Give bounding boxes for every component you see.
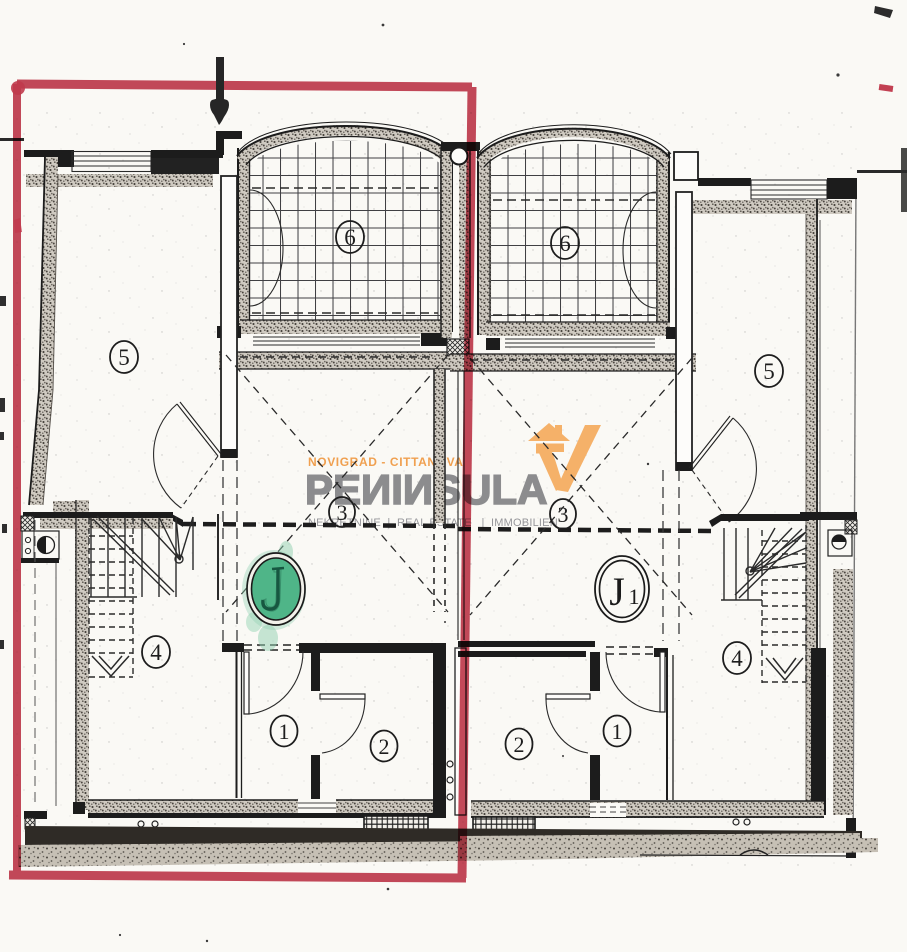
svg-text:6: 6 — [344, 225, 356, 250]
svg-text:1: 1 — [612, 719, 623, 744]
svg-text:J: J — [609, 569, 625, 614]
svg-text:1: 1 — [279, 719, 290, 744]
svg-text:2: 2 — [379, 734, 390, 759]
svg-text:2: 2 — [514, 732, 525, 757]
svg-text:4: 4 — [731, 646, 743, 671]
svg-text:6: 6 — [559, 231, 571, 256]
svg-text:5: 5 — [763, 359, 775, 384]
svg-text:4: 4 — [150, 640, 162, 665]
svg-text:5: 5 — [118, 345, 130, 370]
svg-text:3: 3 — [337, 500, 348, 525]
svg-text:3: 3 — [558, 502, 569, 527]
svg-text:1: 1 — [629, 584, 640, 609]
